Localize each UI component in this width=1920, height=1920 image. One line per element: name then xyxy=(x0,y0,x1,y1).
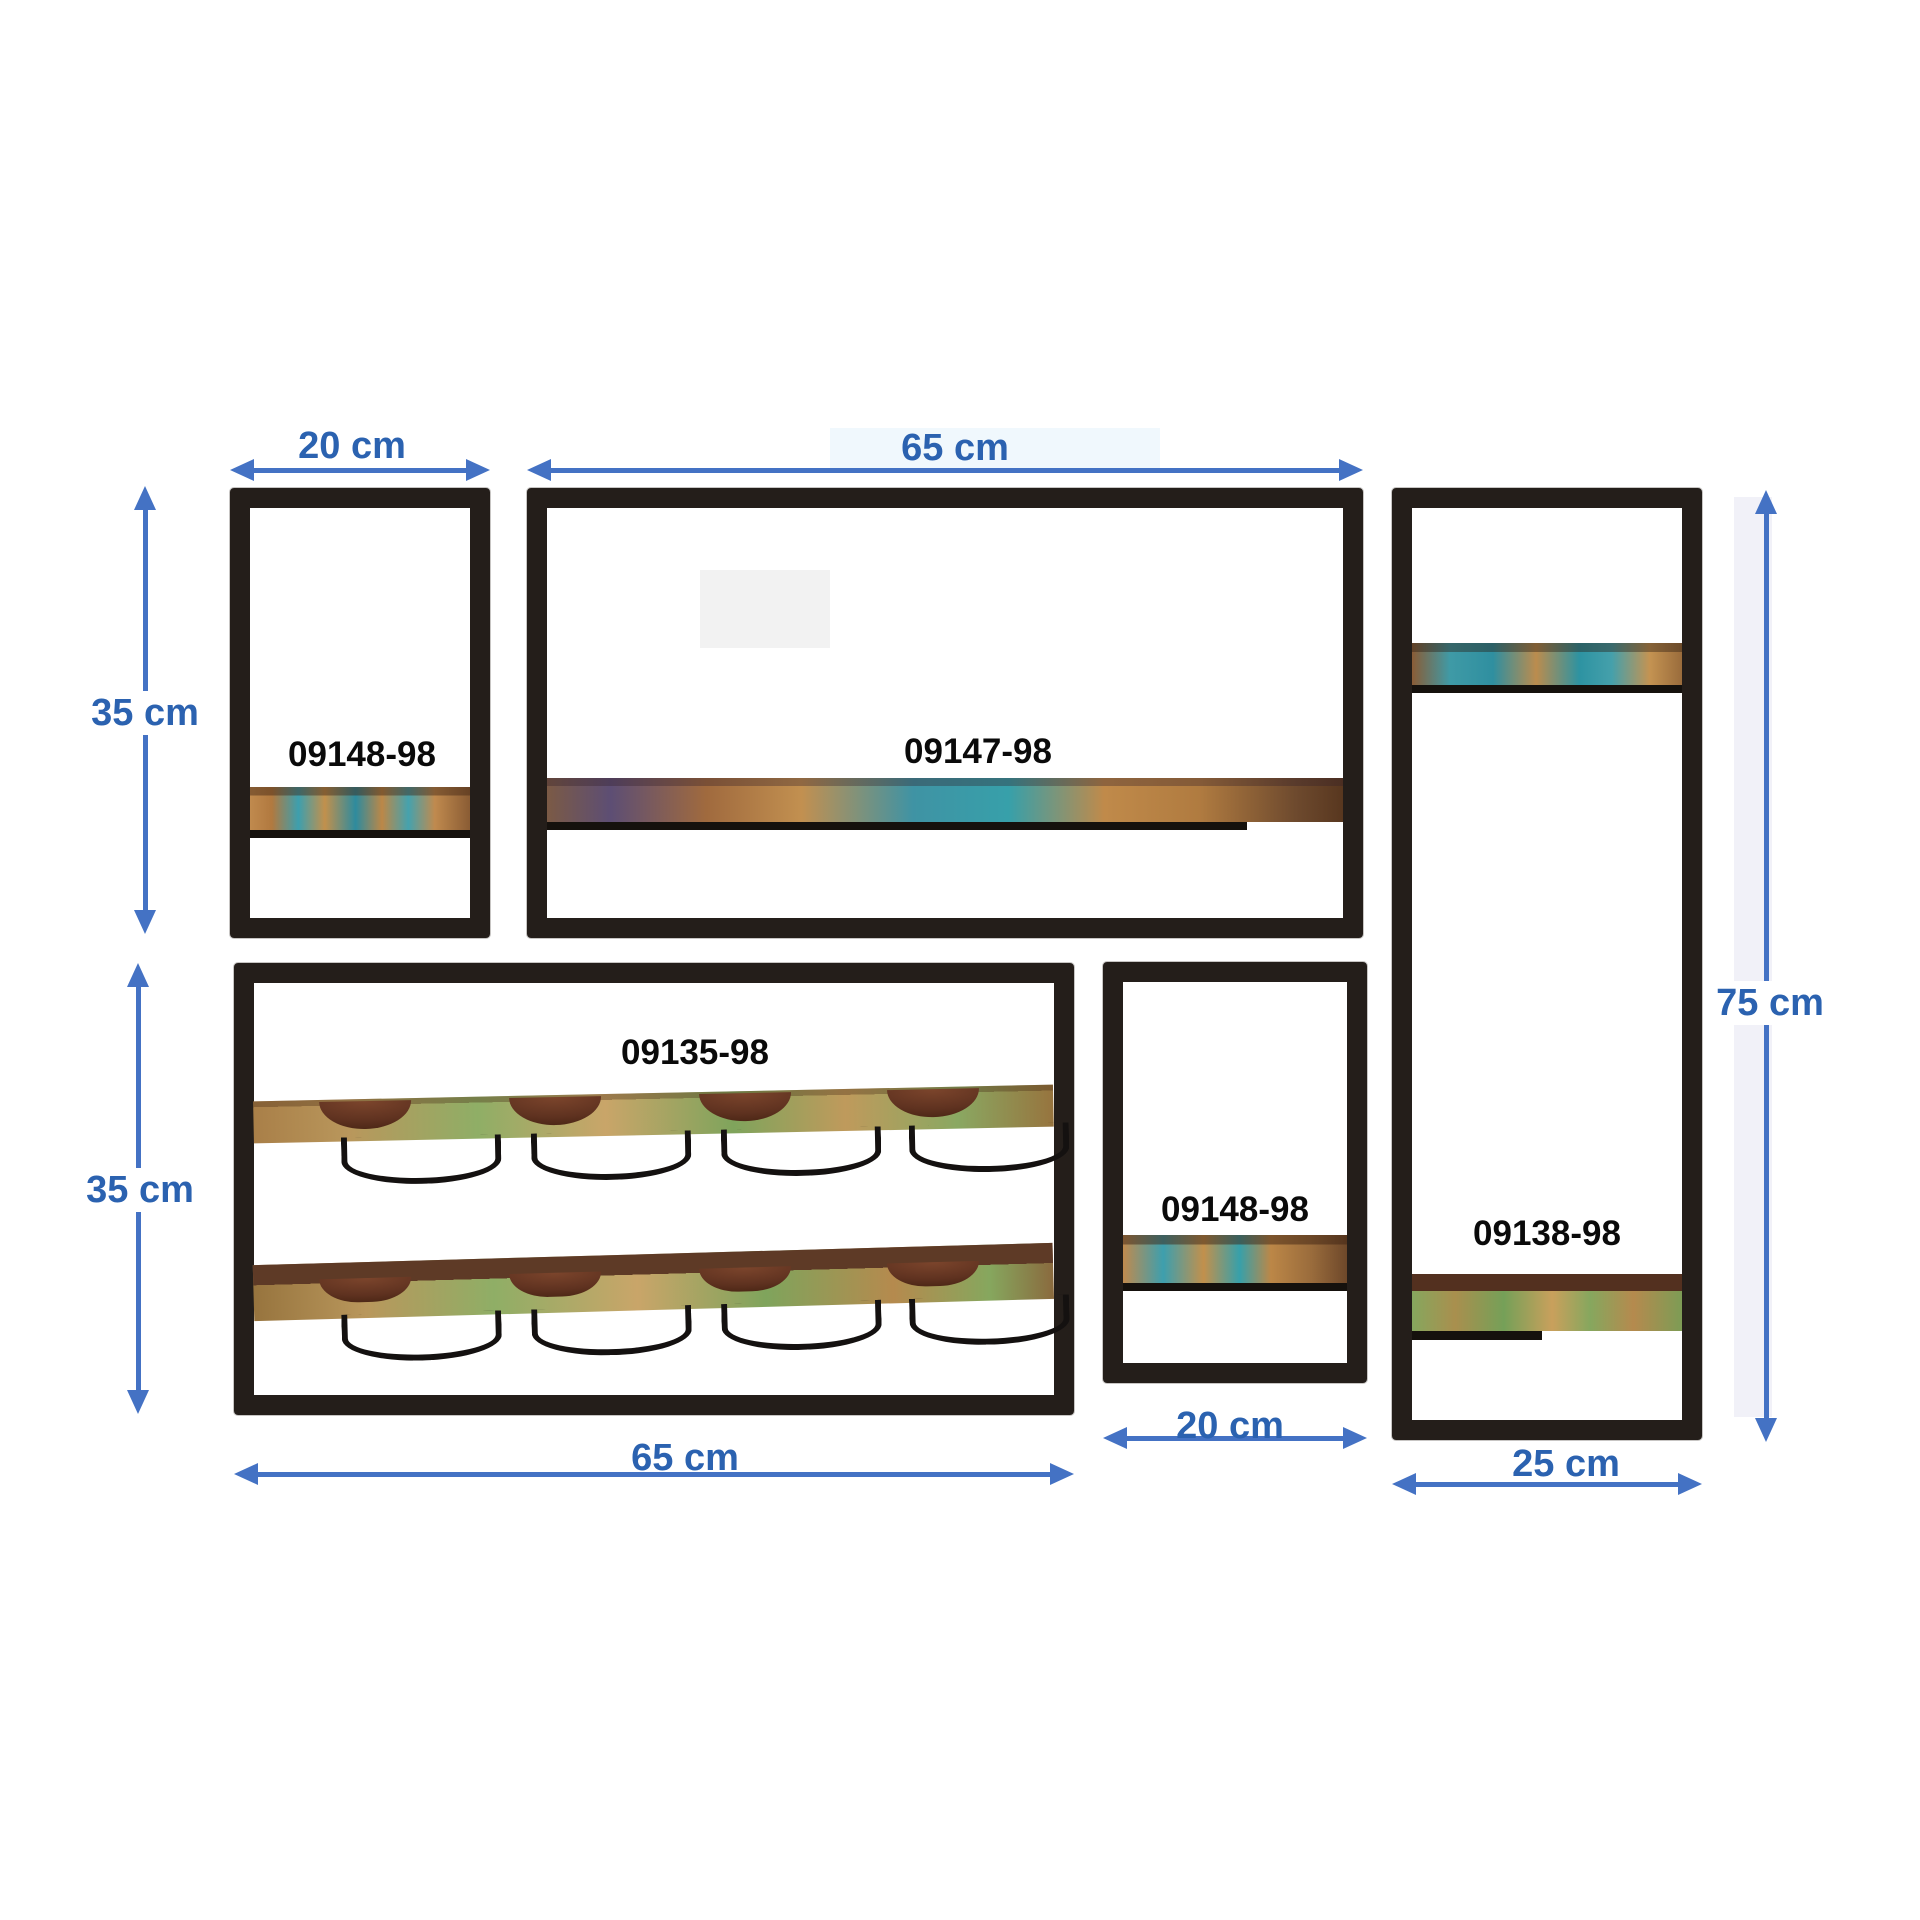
wire-arc xyxy=(721,1126,882,1177)
arrowhead-right-icon xyxy=(1050,1463,1074,1485)
shelf-board xyxy=(1412,1274,1682,1331)
shelf-support-bar xyxy=(250,830,470,838)
dimension-label: 65 cm xyxy=(631,1436,739,1480)
shelf-frame xyxy=(1103,962,1367,1383)
shelf-frame xyxy=(527,488,1363,938)
shelf-support-bar xyxy=(1412,1331,1542,1340)
product-code: 09148-98 xyxy=(1161,1188,1309,1232)
arrowhead-left-icon xyxy=(527,459,551,481)
dimension-label: 75 cm xyxy=(1709,981,1831,1025)
shelf-support-bar xyxy=(1123,1283,1347,1291)
shelf-board xyxy=(1123,1235,1347,1283)
wire-arc xyxy=(721,1300,882,1352)
arrowhead-down-icon xyxy=(127,1390,149,1414)
arrowhead-up-icon xyxy=(127,963,149,987)
dimension-label: 35 cm xyxy=(79,1168,201,1212)
product-code: 09138-98 xyxy=(1473,1212,1621,1256)
arrowhead-left-icon xyxy=(1103,1427,1127,1449)
dimension-label: 35 cm xyxy=(84,691,206,735)
arrowhead-left-icon xyxy=(1392,1473,1416,1495)
product-code: 09135-98 xyxy=(621,1031,769,1075)
shelf-frame xyxy=(230,488,490,938)
arrowhead-right-icon xyxy=(466,459,490,481)
dimension-line xyxy=(254,468,466,473)
product-dimension-diagram: 09148-98 09147-98 09138-98 09135-98 xyxy=(0,0,1920,1920)
product-code: 09148-98 xyxy=(288,733,436,777)
product-code: 09147-98 xyxy=(904,730,1052,774)
arrowhead-down-icon xyxy=(1755,1418,1777,1442)
wire-arc xyxy=(341,1310,502,1362)
dimension-label: 20 cm xyxy=(1176,1404,1284,1448)
wire-arc xyxy=(341,1134,502,1185)
wire-arc xyxy=(531,1130,692,1181)
wire-arc xyxy=(531,1305,692,1357)
arrowhead-left-icon xyxy=(234,1463,258,1485)
dimension-label: 25 cm xyxy=(1512,1442,1620,1486)
shelf-board xyxy=(547,778,1343,822)
shelf-support-bar xyxy=(547,822,1247,830)
arrowhead-right-icon xyxy=(1678,1473,1702,1495)
dimension-label: 20 cm xyxy=(298,424,406,468)
dimension-line xyxy=(1764,514,1769,1418)
arrowhead-up-icon xyxy=(134,486,156,510)
arrowhead-right-icon xyxy=(1343,1427,1367,1449)
arrowhead-down-icon xyxy=(134,910,156,934)
wire-arc xyxy=(909,1122,1070,1173)
dimension-label: 65 cm xyxy=(901,426,1009,470)
shelf-board xyxy=(1412,643,1682,685)
wine-rail-row xyxy=(253,1085,1055,1197)
arrowhead-right-icon xyxy=(1339,459,1363,481)
shelf-support-bar xyxy=(1412,685,1682,693)
arrowhead-left-icon xyxy=(230,459,254,481)
shelf-board xyxy=(250,787,470,830)
arrowhead-up-icon xyxy=(1755,490,1777,514)
wire-arc xyxy=(909,1294,1070,1346)
